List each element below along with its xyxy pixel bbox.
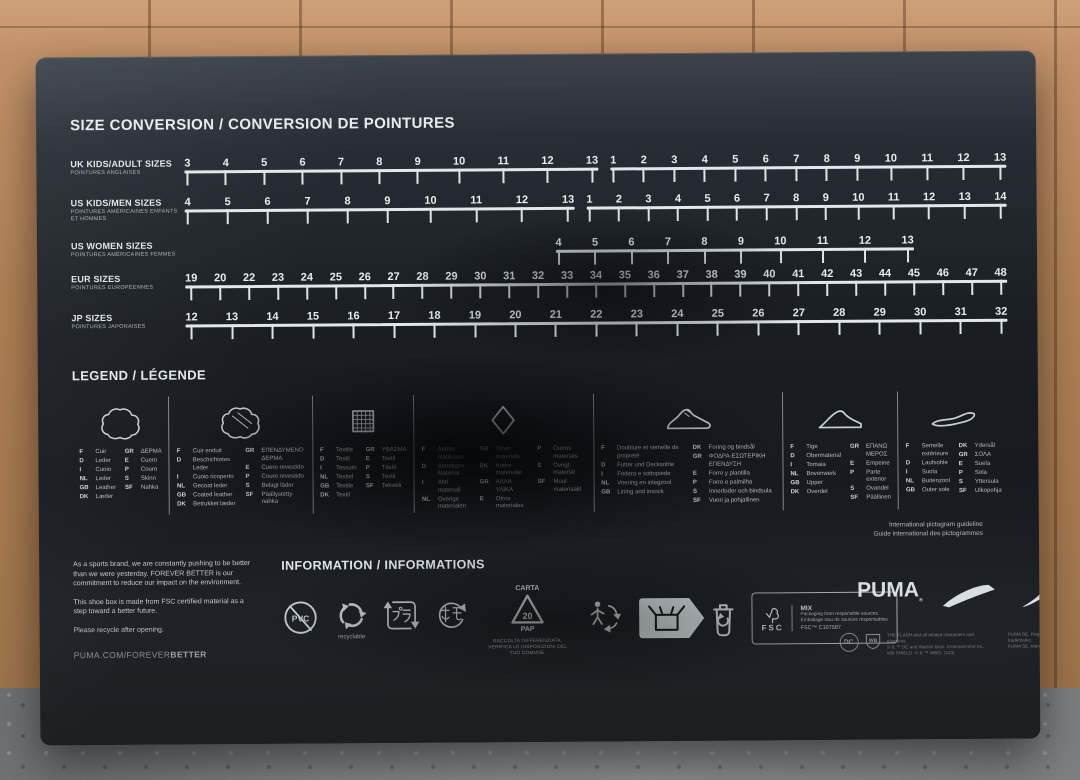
sole-langs-2: DKYdersålGRΣΟΛΑESuelaPSolaSYttersulaSFUl… (959, 443, 1002, 497)
paper-recycling-column: CARTA 20 PAP RACCOLTA DIFFERENZIATA. VER… (483, 584, 572, 658)
coated-leather-icon (176, 396, 305, 449)
upper-langs-1: FTigeDObermaterialITomaiaNLBovenwerkGBUp… (790, 444, 841, 504)
pictogram-guideline-note: International pictogram guideline Guide … (73, 521, 1009, 545)
puma-shoe-box: SIZE CONVERSION / CONVERSION DE POINTURE… (36, 51, 1041, 746)
legend-col-textile: FTextileDTextilITessutoNLTextielGBTextil… (312, 395, 415, 514)
size-row-eur-label: EUR SIZES POINTURES EUROPÉENNES (71, 273, 185, 292)
puma-legal-text: PUMA SE, Registered trademarks. PUMA SE,… (1008, 631, 1041, 649)
fsc-tree-icon (763, 604, 781, 624)
packaging-sorting-icon (637, 596, 737, 641)
size-row-uk: UK KIDS/ADULT SIZES POINTURES ANGLAISES … (70, 152, 1006, 189)
size-row-jp-label: JP SIZES POINTURES JAPONAISES (71, 312, 185, 331)
textile-langs-1: FTextileDTextilITessutoNLTextielGBTextil… (320, 447, 357, 501)
leather-langs-1: FCuirDLederICuoioNLLederGBLeatherDKLæder (79, 449, 116, 503)
legend-grid: FCuirDLederICuoioNLLederGBLeatherDKLæder… (72, 391, 1009, 516)
recyclable-icon: recyclable (333, 598, 369, 640)
wb-shield-logo: WB (864, 633, 881, 650)
svg-text:PVC: PVC (292, 613, 310, 623)
eur-scale: 1920222324252627282930313233343536373839… (185, 267, 1007, 303)
legend-col-other-materials: FAutres matériauxDSonstiges MaterialIAlt… (413, 394, 593, 513)
size-row-us-men: US KIDS/MEN SIZES POINTURES AMÉRICAINES … (71, 191, 1007, 228)
jp-scale: 1213141516171819202122232425262728293031… (185, 306, 1007, 342)
legend-col-upper: FTigeDObermaterialITomaiaNLBovenwerkGBUp… (782, 391, 898, 510)
textile-icon (320, 395, 407, 448)
other-langs-1: FAutres matériauxDSonstiges MaterialIAlt… (422, 446, 471, 512)
bottom-section: As a sports brand, we are constantly pus… (73, 554, 1010, 663)
lining-shoe-icon (601, 392, 776, 445)
us-men-scale: 1234567891011121314 (586, 191, 1007, 224)
legend-title: LEGEND / LÉGENDE (72, 362, 1008, 384)
upper-langs-2: GRΕΠΑΝΩ ΜΕΡΟΣEEmpeinePParte exteriorSOva… (850, 444, 891, 504)
lining-langs-1: FDoublure et semelle de propretéDFutter … (601, 445, 684, 507)
puma-cat-icon (1019, 575, 1041, 613)
pap-20-triangle-icon: 20 (508, 593, 546, 625)
branding-block: PUMA® DC WB THE FLASH and all re (839, 553, 1041, 657)
lining-langs-2: DKForing og bindsålGRΦΟΔΡΑ-ΕΣΩΤΕΡΙΚΗ ΕΠΕ… (693, 444, 776, 506)
uk-adult-scale: 12345678910111213 (610, 152, 1006, 185)
dc-logo: DC (839, 633, 858, 652)
legend-col-coated-leather: FCuir enduitDBeschichtetes LederICuoio r… (168, 396, 312, 515)
size-row-us-men-label: US KIDS/MEN SIZES POINTURES AMÉRICAINES … (71, 197, 185, 223)
svg-text:20: 20 (523, 611, 533, 621)
size-row-uk-label: UK KIDS/ADULT SIZES POINTURES ANGLAISES (70, 158, 184, 177)
size-row-jp: JP SIZES POINTURES JAPONAISES 1213141516… (71, 306, 1007, 343)
size-row-us-women: US WOMEN SIZES POINTURES AMÉRICAINES FEM… (71, 234, 1007, 271)
information-section: INFORMATION / INFORMATIONS PVC (251, 555, 839, 661)
leather-hide-icon (79, 397, 162, 450)
kami-mark-icon (433, 597, 469, 631)
no-pvc-icon: PVC (281, 599, 319, 637)
coated-langs-2: GRΕΠΕΝΔΥΜΕΝΟ ΔΕΡΜΑECuero revestidoPCouro… (245, 448, 305, 510)
outer-sole-icon (905, 391, 1001, 444)
size-row-eur: EUR SIZES POINTURES EUROPÉENNES 19202223… (71, 267, 1007, 304)
leather-langs-2: GRΔΕΡΜΑECueroPCouroSSkinnSFNahka (125, 449, 162, 503)
pla-mark-icon (383, 598, 419, 632)
forever-better-url: PUMA.COM/FOREVERBETTER (74, 650, 252, 661)
information-title: INFORMATION / INFORMATIONS (281, 555, 839, 573)
coated-langs-1: FCuir enduitDBeschichtetes LederICuoio r… (177, 448, 237, 510)
puma-formstrip-icon (940, 582, 1002, 608)
triman-icon (585, 596, 623, 632)
legend-col-lining: FDoublure et semelle de propretéDFutter … (593, 392, 783, 511)
other-langs-3: POutros materiaisSÖvrigt materialSFMuut … (537, 446, 586, 512)
us-kids-scale: 45678910111213 (185, 194, 575, 227)
size-conversion-title: SIZE CONVERSION / CONVERSION DE POINTURE… (70, 111, 1006, 135)
puma-wordmark: PUMA® (857, 579, 923, 612)
other-langs-2: GBOther materialsDKAndre materialerGRΑΛΛ… (479, 446, 528, 512)
textile-langs-2: GRΥΦΑΣΜΑETextilPTêxtilSTextilSFTekstiili (366, 447, 407, 501)
sole-langs-1: FSemelle extérieureDLaufsohleISuolaNLBui… (906, 443, 950, 497)
svg-text:WB: WB (868, 638, 877, 644)
other-materials-icon (421, 394, 586, 447)
upper-shoe-icon (790, 392, 891, 445)
legal-row: DC WB THE FLASH and all related characte… (839, 631, 1040, 657)
us-women-scale: 45678910111213 (555, 234, 914, 267)
legend-col-outer-sole: FSemelle extérieureDLaufsohleISuolaNLBui… (897, 391, 1009, 510)
uk-kids-scale: 345678910111213 (184, 155, 598, 188)
legend-col-leather: FCuirDLederICuoioNLLederGBLeatherDKLæder… (72, 397, 169, 516)
sustainability-note: As a sports brand, we are constantly pus… (73, 559, 252, 662)
flash-legal-text: THE FLASH and all related characters and… (887, 632, 992, 657)
size-row-us-women-label: US WOMEN SIZES POINTURES AMÉRICAINES FEM… (71, 240, 185, 259)
